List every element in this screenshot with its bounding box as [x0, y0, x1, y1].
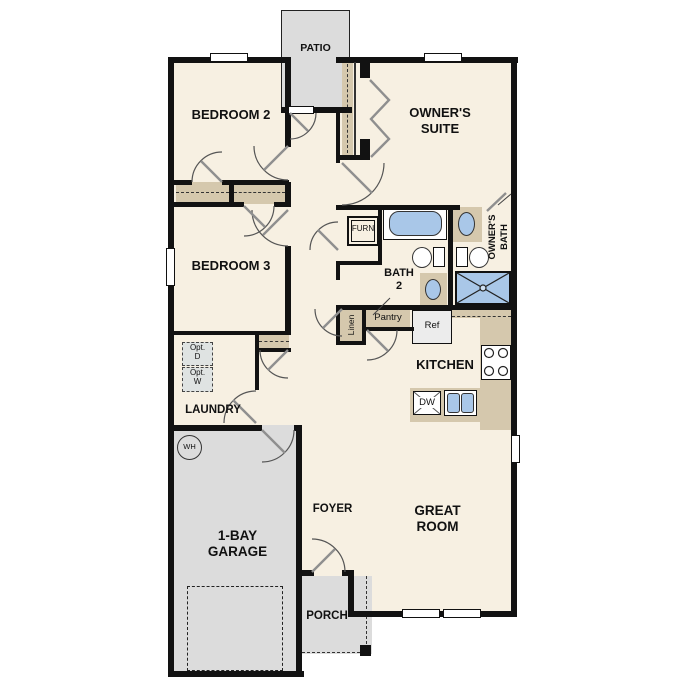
window-greatroom-bottom-left [402, 609, 440, 618]
owners-closet-front-edge [354, 62, 356, 155]
garage-label: 1-BAY GARAGE [180, 528, 295, 561]
bath2-toilet-bowl [412, 247, 432, 268]
wall-garage-right [296, 425, 302, 677]
pantry-label: Pantry [366, 312, 410, 324]
porch-label: PORCH [298, 609, 356, 623]
garage-door-outline [187, 586, 283, 671]
great-room-label: GREAT ROOM [395, 503, 480, 536]
porch-post [360, 645, 371, 656]
window-greatroom-bottom-right [443, 609, 481, 618]
wall-ext-left [168, 57, 174, 677]
optional-washer-label: Opt. W [182, 369, 213, 387]
wall-bedroom2-right [285, 57, 291, 147]
bathtub [389, 211, 442, 236]
bedroom3-label: BEDROOM 3 [176, 258, 286, 274]
shower [455, 271, 511, 305]
wall-laundry-right [255, 335, 259, 390]
wall-pantry-bottom [362, 327, 414, 331]
bedroom2-closet-rod [176, 192, 229, 193]
hall-closet-rod [259, 341, 289, 342]
wall-patio-bottom-b [314, 107, 352, 113]
wall-owners-closet-stub-bottom [360, 139, 370, 157]
laundry-label: LAUNDRY [172, 403, 254, 417]
wall-bath2-left [336, 265, 340, 280]
bedroom3-closet-rod [234, 192, 285, 193]
wall-furnace-right [378, 210, 382, 265]
refrigerator-label: Ref [412, 320, 452, 332]
optional-dryer-label: Opt. D [182, 344, 213, 362]
bedroom2-label: BEDROOM 2 [176, 107, 286, 123]
kitchen-sink-basin-left [447, 393, 460, 413]
bath2-label: BATH 2 [378, 267, 420, 294]
stove [481, 345, 511, 380]
linen-label: Linen [337, 305, 365, 345]
bedroom2-closet [176, 182, 229, 204]
window-greatroom-right [511, 435, 520, 463]
floor-plan-canvas: PATIO BEDROOM 2 OWNER'S SUITE OWNER'S BA… [0, 0, 687, 687]
wall-bath-divider [448, 205, 453, 309]
patio-label: PATIO [281, 42, 350, 55]
wall-furnace-bottom [336, 261, 382, 265]
window-bedroom2 [210, 53, 248, 62]
patio-door [288, 106, 314, 114]
dishwasher-label-chip: DW [418, 397, 436, 408]
owners-bath-label: OWNER'S BATH [468, 204, 530, 270]
window-owners-suite [424, 53, 462, 62]
bath2-sink [425, 279, 441, 300]
wall-ext-right [511, 57, 517, 617]
window-bedroom3 [166, 248, 175, 286]
wall-bed2-closet-top-a [174, 180, 192, 185]
owners-toilet-tank [456, 247, 468, 267]
furnace-label: FURN [347, 224, 379, 234]
wall-suite-bottom [336, 205, 460, 210]
wall-bedroom3-top-b [274, 202, 289, 207]
wall-hall-closet-bottom [255, 348, 291, 352]
kitchen-sink-basin-right [461, 393, 474, 413]
floor-bedroom3-laundry [172, 207, 290, 430]
owners-suite-label: OWNER'S SUITE [380, 105, 500, 137]
water-heater-label: WH [177, 442, 202, 451]
wall-garage-top-a [168, 425, 262, 431]
dishwasher-label: DW [413, 397, 441, 409]
bedroom3-closet [234, 183, 285, 204]
wall-owners-closet-stub-top [360, 62, 370, 78]
wall-garage-bottom [168, 671, 304, 677]
counter-dashed-edge [452, 316, 511, 317]
wall-front-left-of-door [300, 570, 314, 576]
foyer-label: FOYER [305, 502, 360, 516]
wall-bedroom3-bottom [168, 331, 289, 335]
kitchen-label: KITCHEN [405, 357, 485, 373]
bath2-toilet-tank [433, 247, 445, 267]
wall-bedroom3-top-a [174, 202, 244, 207]
